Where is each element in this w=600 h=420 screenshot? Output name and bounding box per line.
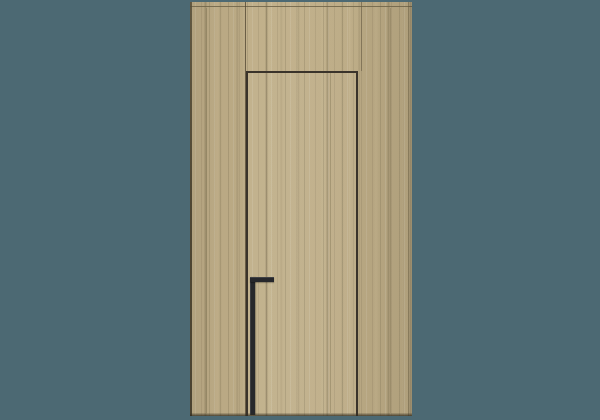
door-leaf-gap-outline [246, 71, 358, 416]
panel-left-edge-shadow [190, 2, 192, 416]
wall-section-left [190, 2, 245, 416]
door-handle-top-return [250, 277, 274, 282]
wall-section-right [362, 2, 412, 416]
scene-background [0, 0, 600, 420]
panel-top-trim-seam [190, 6, 412, 7]
floor-shadow-line [190, 413, 412, 416]
door-handle-vertical-bar [250, 277, 255, 415]
wood-grain-streak [206, 8, 207, 413]
panel-right-edge-seam [408, 2, 412, 416]
panel-seam-right-transom [361, 2, 362, 71]
wood-wall-panel [190, 2, 412, 416]
wood-grain-streak [390, 8, 391, 413]
